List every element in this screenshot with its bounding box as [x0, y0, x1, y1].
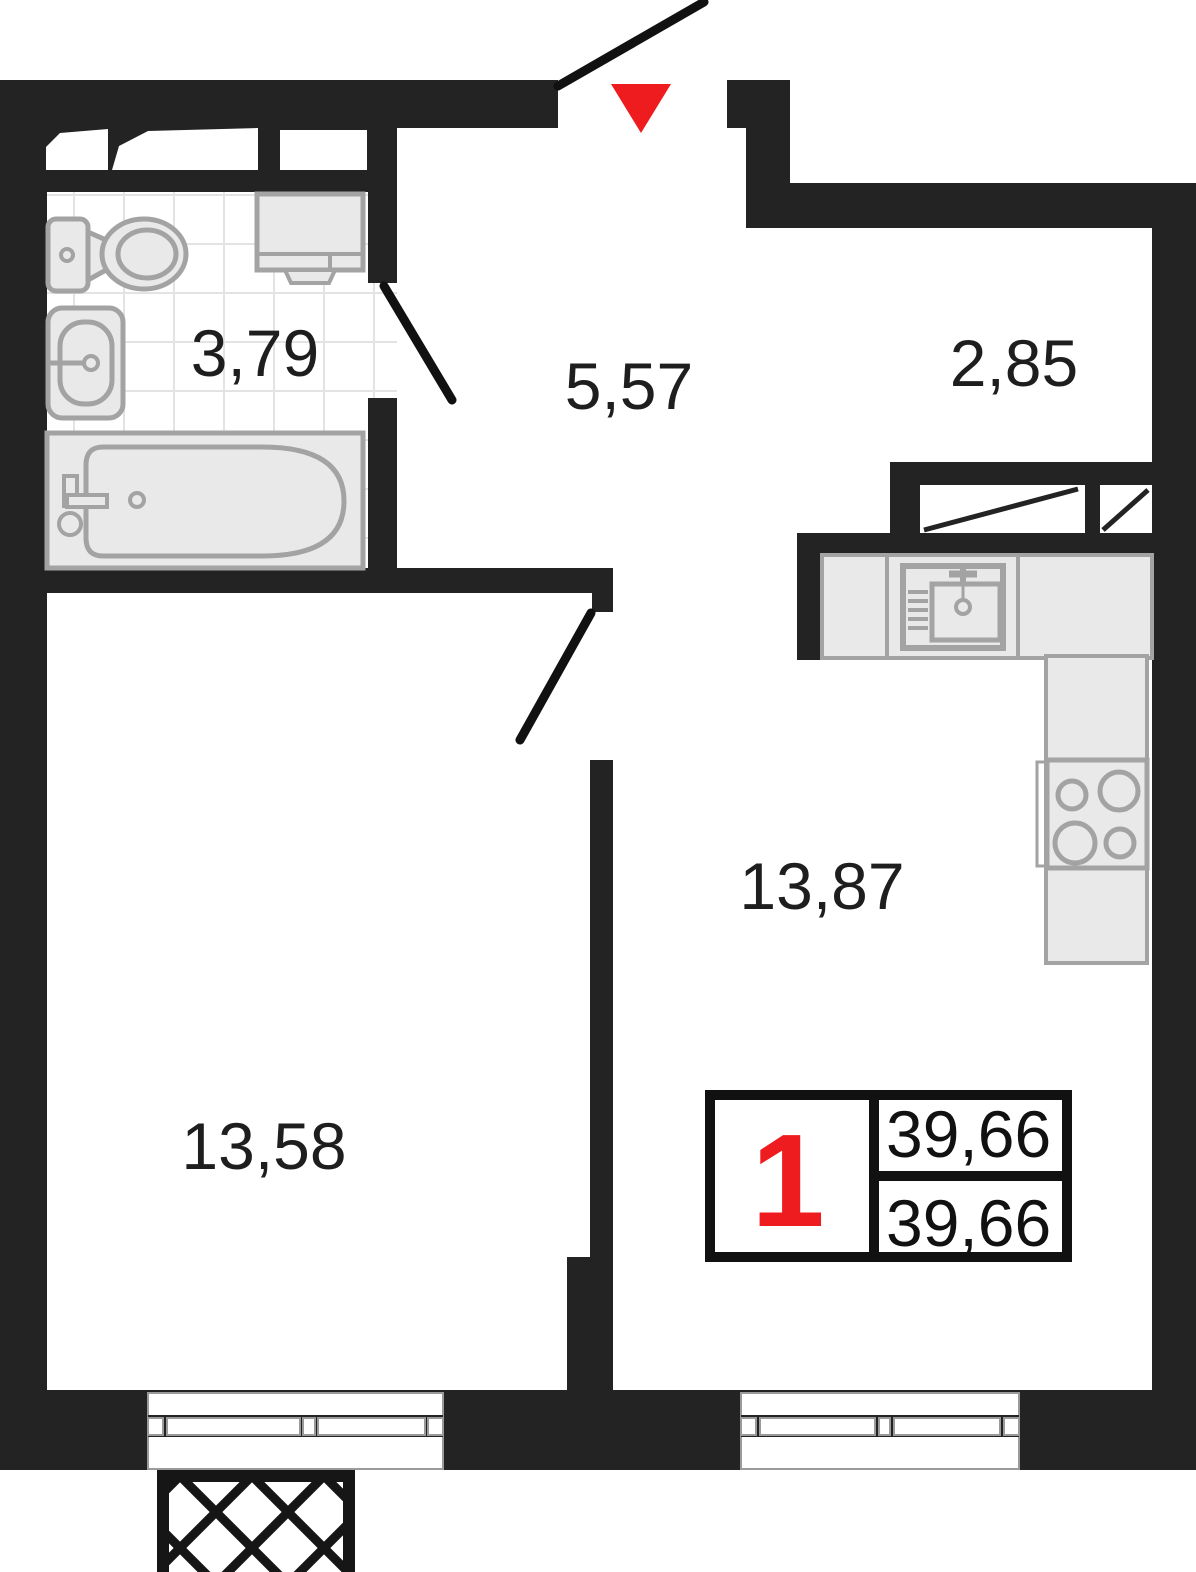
wall-top-right — [746, 183, 1196, 228]
window-sill-line — [1103, 490, 1148, 530]
vent-openings — [46, 128, 367, 170]
floor-plan: 3,79 5,57 2,85 13,87 13,58 1 39,66 39,66 — [0, 0, 1196, 1572]
stamp-area-living: 39,66 — [886, 1186, 1051, 1260]
balcony-hatch — [163, 1476, 349, 1572]
wall-bathroom-lower — [368, 398, 397, 568]
floor-plan-drawing: 3,79 5,57 2,85 13,87 13,58 1 39,66 39,66 — [0, 0, 1196, 1572]
wall-left — [0, 80, 47, 1470]
bedroom-door-swing — [520, 613, 591, 740]
wall-right — [1152, 183, 1196, 1470]
room-label-bathroom: 3,79 — [191, 316, 319, 390]
room-label-bedroom: 13,58 — [181, 1109, 346, 1183]
wall-kitchen-sill — [797, 533, 1152, 555]
entrance-door — [558, 2, 704, 133]
wall-kitchen-window-mullion — [1085, 485, 1100, 533]
wall-under-bathroom — [47, 568, 592, 593]
wall-room-partition — [590, 760, 613, 1257]
window-sill-line — [924, 489, 1078, 530]
stove-icon — [1037, 760, 1147, 868]
wall-kitchen-lintel — [890, 462, 1152, 485]
toilet-icon — [48, 219, 186, 291]
wall-entrance-stub-ext — [746, 120, 790, 183]
room-label-kitchen-living: 13,87 — [739, 849, 904, 923]
wall-room-door-stub — [592, 568, 613, 612]
window-bedroom — [148, 1393, 443, 1469]
washing-machine-icon — [257, 194, 363, 283]
washbasin-icon — [48, 308, 123, 418]
window-kitchen-living — [741, 1393, 1019, 1469]
entrance-arrow-icon — [611, 84, 671, 133]
bathtub-icon — [47, 433, 363, 568]
unit-stamp: 1 39,66 39,66 — [710, 1090, 1072, 1262]
vent-opening-icon — [280, 130, 367, 170]
wall-kitchen-left — [797, 533, 820, 660]
room-label-loggia: 2,85 — [950, 326, 1078, 400]
kitchen-window — [924, 489, 1148, 530]
stamp-rooms-count: 1 — [751, 1107, 824, 1254]
wall-room-pier — [567, 1257, 613, 1390]
room-label-hallway: 5,57 — [565, 349, 693, 423]
entrance-door-swing — [558, 2, 704, 86]
stamp-area-total: 39,66 — [886, 1097, 1051, 1171]
wall-bathroom-upper — [368, 128, 397, 283]
